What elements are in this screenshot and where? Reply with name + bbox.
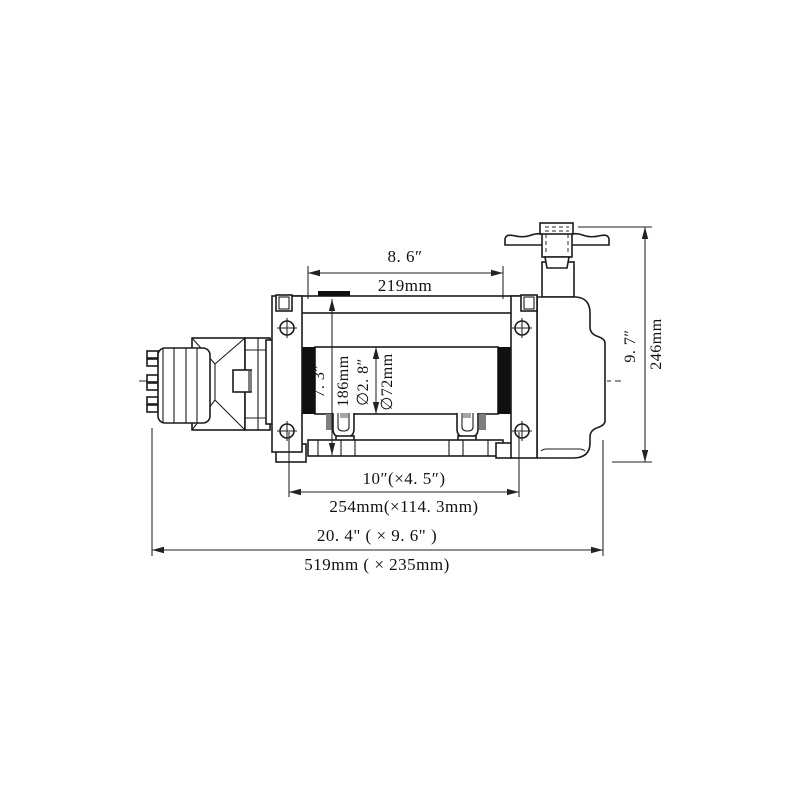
motor-shaft-coupling — [233, 370, 252, 392]
drawing-canvas: 8. 6″ 219mm 7. 3″ 186mm ∅2. 8″ ∅72mm 9. … — [0, 0, 800, 800]
dim-barrel-inch: ∅2. 8″ — [355, 358, 372, 406]
dim-drum-length-mm: 219mm — [378, 276, 432, 295]
rope-end-on-rail — [318, 291, 350, 296]
dim-overall-inch: 20. 4" ( × 9. 6" ) — [317, 526, 437, 545]
dim-flange-inch: 7. 3″ — [311, 364, 328, 397]
dim-height-mm: 246mm — [648, 318, 665, 369]
hydraulic-port-fittings — [147, 351, 158, 412]
hydraulic-motor-assembly — [147, 338, 273, 430]
right-plate-foot — [496, 443, 512, 458]
drum-flange-right — [498, 347, 511, 414]
dim-mounting-mm: 254mm(×114. 3mm) — [329, 497, 478, 516]
motor-cylinder — [158, 348, 210, 423]
dim-height-inch: 9. 7″ — [622, 329, 639, 362]
clutch-cap — [540, 223, 573, 234]
dim-flange-mm: 186mm — [335, 355, 352, 406]
dim-mounting-inch: 10″(×4. 5″) — [362, 469, 445, 488]
tie-bar — [308, 440, 503, 456]
winch-dimensional-drawing: 8. 6″ 219mm 7. 3″ 186mm ∅2. 8″ ∅72mm 9. … — [0, 0, 800, 800]
clutch-neck — [545, 257, 569, 268]
dim-barrel-mm: ∅72mm — [379, 353, 396, 410]
dim-overall-mm: 519mm ( × 235mm) — [304, 555, 450, 574]
dim-drum-length-inch: 8. 6″ — [387, 247, 422, 266]
top-tie-rail — [283, 296, 537, 313]
